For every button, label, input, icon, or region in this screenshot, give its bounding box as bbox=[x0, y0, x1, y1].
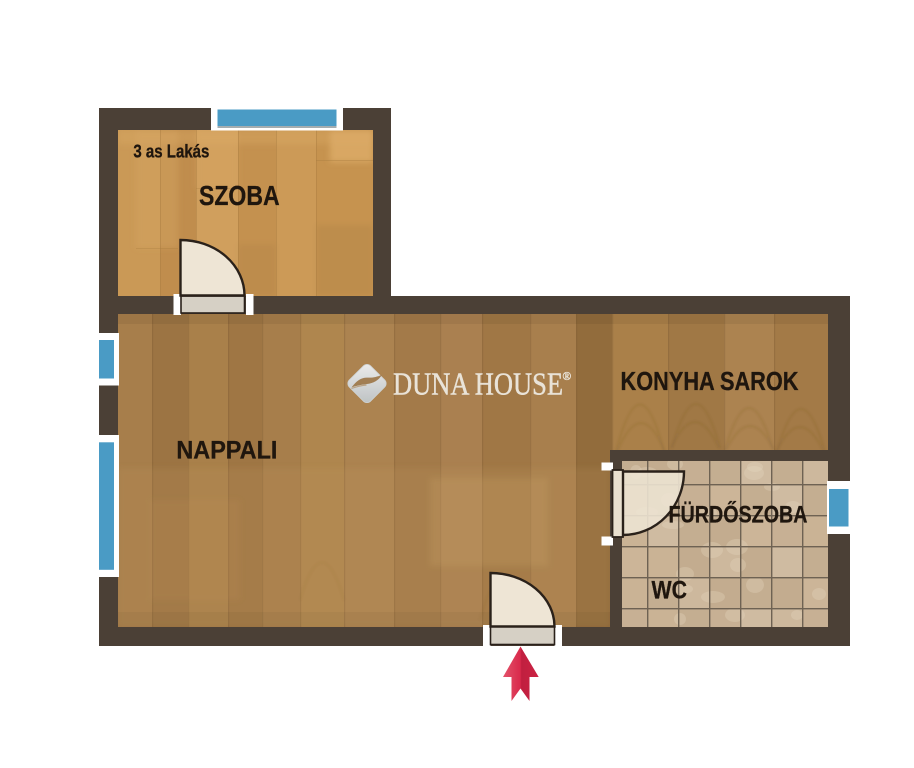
svg-text:WC: WC bbox=[652, 577, 688, 605]
svg-text:FÜRDŐSZOBA: FÜRDŐSZOBA bbox=[669, 501, 808, 529]
svg-text:SZOBA: SZOBA bbox=[199, 180, 280, 211]
svg-text:3 as Lakás: 3 as Lakás bbox=[133, 140, 209, 161]
svg-text:®: ® bbox=[563, 371, 572, 383]
svg-text:KONYHA SAROK: KONYHA SAROK bbox=[621, 368, 799, 396]
svg-text:NAPPALI: NAPPALI bbox=[176, 436, 277, 464]
svg-text:DUNA HOUSE: DUNA HOUSE bbox=[393, 366, 563, 402]
